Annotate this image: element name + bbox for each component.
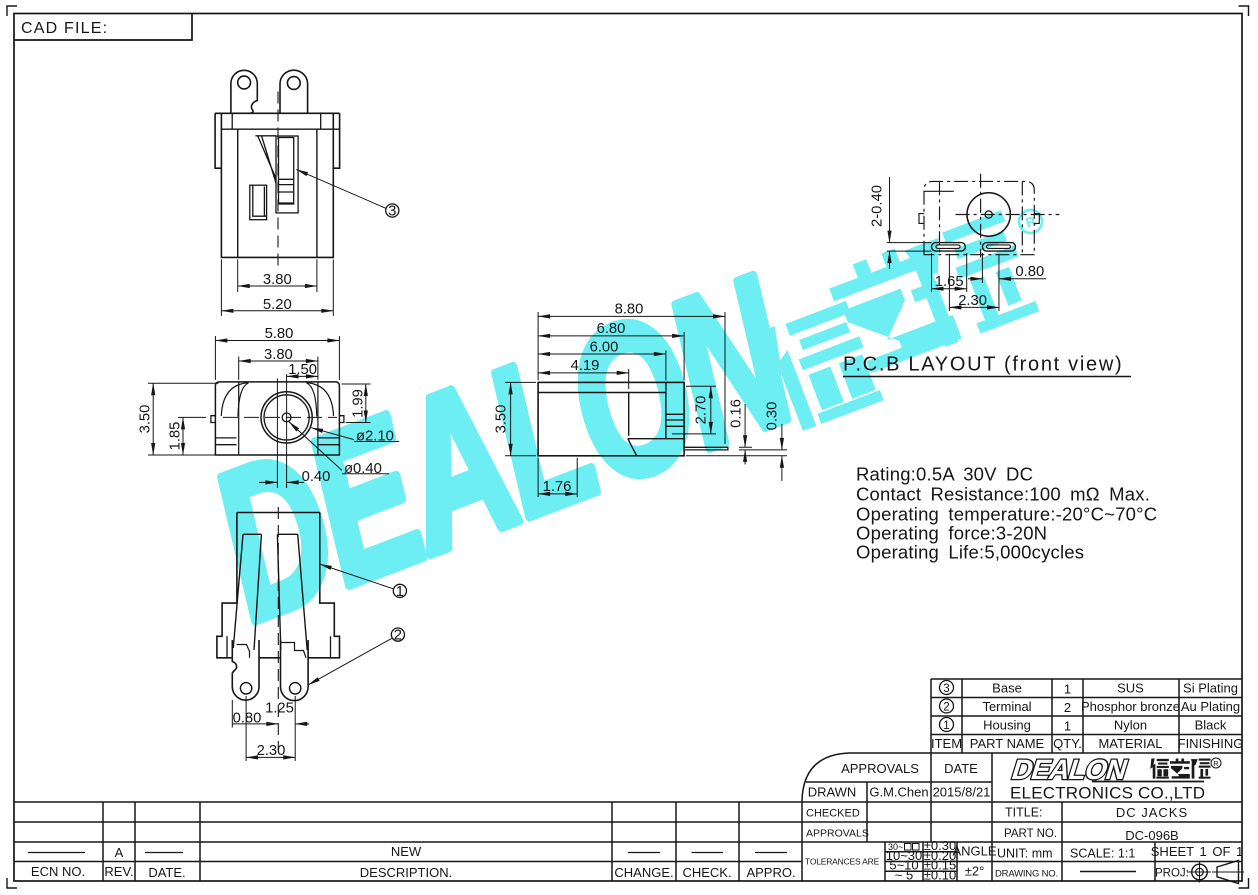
svg-text:Nylon: Nylon [1114, 718, 1147, 733]
svg-text:Housing: Housing [983, 718, 1031, 733]
svg-text:Operating temperature:-20°C~70: Operating temperature:-20°C~70°C [856, 504, 1157, 525]
svg-text:1: 1 [396, 584, 404, 600]
svg-text:2.30: 2.30 [958, 293, 987, 309]
svg-text:NEW: NEW [391, 844, 422, 859]
svg-text:3: 3 [943, 683, 949, 695]
svg-text:3.50: 3.50 [137, 405, 153, 434]
svg-text:2: 2 [1064, 700, 1071, 715]
svg-text:4.19: 4.19 [571, 358, 600, 374]
svg-text:0.80: 0.80 [233, 710, 262, 726]
svg-text:CAD FILE:: CAD FILE: [21, 20, 108, 37]
svg-text:APPROVALS: APPROVALS [806, 828, 869, 840]
svg-text:6.00: 6.00 [590, 340, 619, 356]
svg-text:ECN NO.: ECN NO. [31, 864, 85, 879]
svg-text:1: 1 [943, 720, 949, 732]
svg-text:±2°: ±2° [965, 864, 985, 879]
svg-text:REV.: REV. [104, 864, 133, 879]
svg-text:1: 1 [1064, 682, 1071, 697]
svg-text:APPRO.: APPRO. [746, 865, 795, 880]
svg-text:SHEET 1 OF 1: SHEET 1 OF 1 [1151, 844, 1243, 859]
svg-text:Black: Black [1195, 718, 1227, 733]
svg-text:0.40: 0.40 [302, 469, 331, 485]
svg-text:ø2.10: ø2.10 [356, 429, 394, 445]
svg-text:MATERIAL: MATERIAL [1098, 736, 1162, 751]
svg-text:Terminal: Terminal [982, 699, 1031, 714]
svg-text:Operating force:3-20N: Operating force:3-20N [856, 523, 1047, 544]
svg-text:2015/8/21: 2015/8/21 [933, 785, 991, 800]
svg-text:DC-096B: DC-096B [1125, 828, 1178, 843]
svg-text:CHANGE.: CHANGE. [614, 865, 673, 880]
svg-text:ANGLE: ANGLE [952, 844, 996, 859]
svg-text:3.50: 3.50 [493, 405, 509, 434]
svg-text:DC JACKS: DC JACKS [1116, 805, 1188, 820]
svg-text:R: R [1213, 759, 1219, 768]
svg-text:Rating:0.5A 30V DC: Rating:0.5A 30V DC [856, 464, 1033, 485]
svg-text:P.C.B LAYOUT (front view): P.C.B LAYOUT (front view) [843, 354, 1123, 376]
svg-text:Contact Resistance:100 mΩ Max.: Contact Resistance:100 mΩ Max. [856, 484, 1150, 505]
svg-text:6.80: 6.80 [597, 321, 626, 337]
svg-text:1.99: 1.99 [351, 389, 367, 418]
svg-text:DATE.: DATE. [148, 865, 185, 880]
svg-text:0.30: 0.30 [764, 402, 780, 431]
svg-text:ELECTRONICS CO.,LTD: ELECTRONICS CO.,LTD [1010, 784, 1205, 803]
svg-text:SUS: SUS [1117, 681, 1144, 696]
svg-text:DESCRIPTION.: DESCRIPTION. [360, 865, 452, 880]
svg-text:DRAWN: DRAWN [808, 785, 857, 800]
svg-text:A: A [115, 845, 124, 860]
svg-text:~ 5: ~ 5 [895, 867, 913, 882]
svg-text:2: 2 [943, 702, 949, 714]
svg-text:PART NAME: PART NAME [970, 736, 1045, 751]
svg-text:5.20: 5.20 [263, 297, 292, 313]
svg-text:TOLERANCES ARE: TOLERANCES ARE [805, 857, 880, 867]
svg-text:3.80: 3.80 [264, 347, 293, 363]
svg-text:Operating Life:5,000cycles: Operating Life:5,000cycles [856, 542, 1084, 563]
svg-text:2-0.40: 2-0.40 [869, 185, 885, 227]
svg-text:QTY.: QTY. [1053, 736, 1082, 751]
svg-text:APPROVALS: APPROVALS [841, 761, 919, 776]
svg-text:0.80: 0.80 [1015, 264, 1044, 280]
svg-text:1.25: 1.25 [265, 701, 294, 717]
svg-text:DATE: DATE [944, 761, 978, 776]
svg-text:2.70: 2.70 [693, 396, 709, 425]
svg-text:1.85: 1.85 [167, 422, 183, 451]
svg-text:CHECK.: CHECK. [682, 865, 731, 880]
svg-text:Base: Base [992, 681, 1022, 696]
svg-text:ITEM: ITEM [931, 736, 962, 751]
svg-text:3.80: 3.80 [263, 272, 292, 288]
svg-text:3: 3 [388, 204, 396, 220]
svg-text:G.M.Chen: G.M.Chen [869, 785, 928, 800]
svg-text:0.16: 0.16 [728, 399, 744, 428]
svg-text:PROJ:: PROJ: [1155, 868, 1189, 880]
svg-text:Si Plating: Si Plating [1183, 681, 1238, 696]
svg-text:ø0.40: ø0.40 [344, 461, 382, 477]
svg-text:SCALE: 1:1: SCALE: 1:1 [1070, 847, 1135, 861]
svg-text:PART NO.: PART NO. [1004, 828, 1057, 840]
svg-text:Au Plating: Au Plating [1181, 699, 1240, 714]
svg-text:DRAWING NO.: DRAWING NO. [995, 869, 1058, 880]
svg-text:Phosphor bronze: Phosphor bronze [1081, 699, 1180, 714]
svg-text:1: 1 [1064, 719, 1071, 734]
svg-text:1.50: 1.50 [288, 362, 317, 378]
svg-text:UNIT: mm: UNIT: mm [997, 847, 1053, 861]
svg-text:FINISHING: FINISHING [1178, 736, 1244, 751]
svg-text:CHECKED: CHECKED [806, 808, 860, 820]
svg-text:±0.10: ±0.10 [924, 867, 956, 882]
svg-text:2.30: 2.30 [257, 743, 286, 759]
svg-text:1.76: 1.76 [543, 479, 572, 495]
svg-text:TITLE:: TITLE: [1005, 806, 1043, 820]
svg-text:8.80: 8.80 [615, 302, 644, 318]
svg-text:1.65: 1.65 [935, 274, 964, 290]
svg-text:5.80: 5.80 [265, 326, 294, 342]
svg-text:2: 2 [394, 628, 402, 644]
